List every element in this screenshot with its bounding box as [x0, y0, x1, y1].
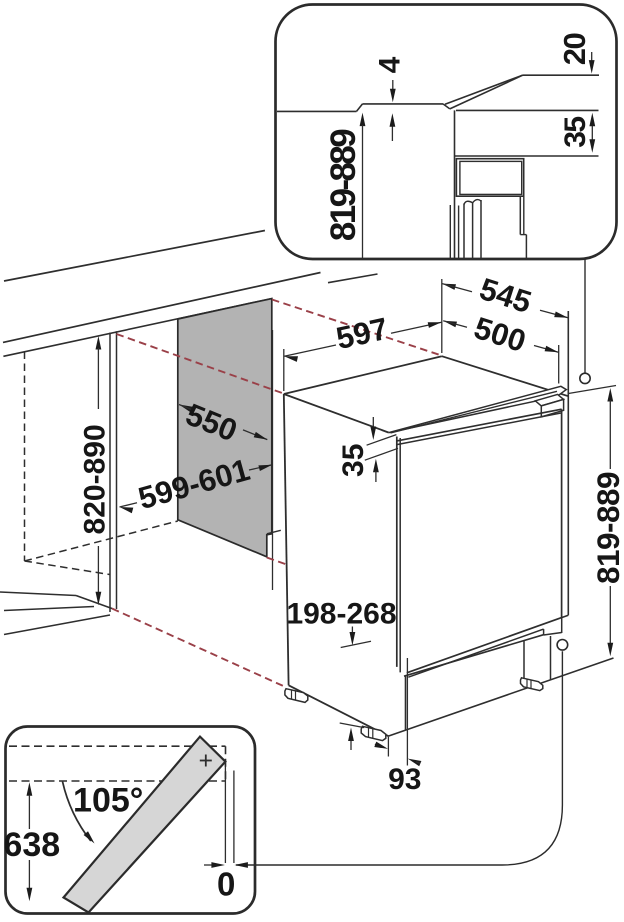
- svg-text:4: 4: [374, 56, 407, 73]
- svg-text:105°: 105°: [73, 782, 143, 820]
- svg-text:819-889: 819-889: [590, 472, 624, 584]
- svg-text:638: 638: [3, 826, 60, 864]
- svg-text:93: 93: [388, 763, 421, 796]
- svg-text:35: 35: [337, 444, 370, 477]
- svg-text:819-889: 819-889: [324, 129, 363, 241]
- svg-text:0: 0: [217, 866, 235, 903]
- svg-text:35: 35: [559, 117, 592, 148]
- svg-text:198-268: 198-268: [286, 597, 396, 630]
- svg-text:20: 20: [557, 34, 592, 66]
- svg-text:820-890: 820-890: [78, 424, 111, 534]
